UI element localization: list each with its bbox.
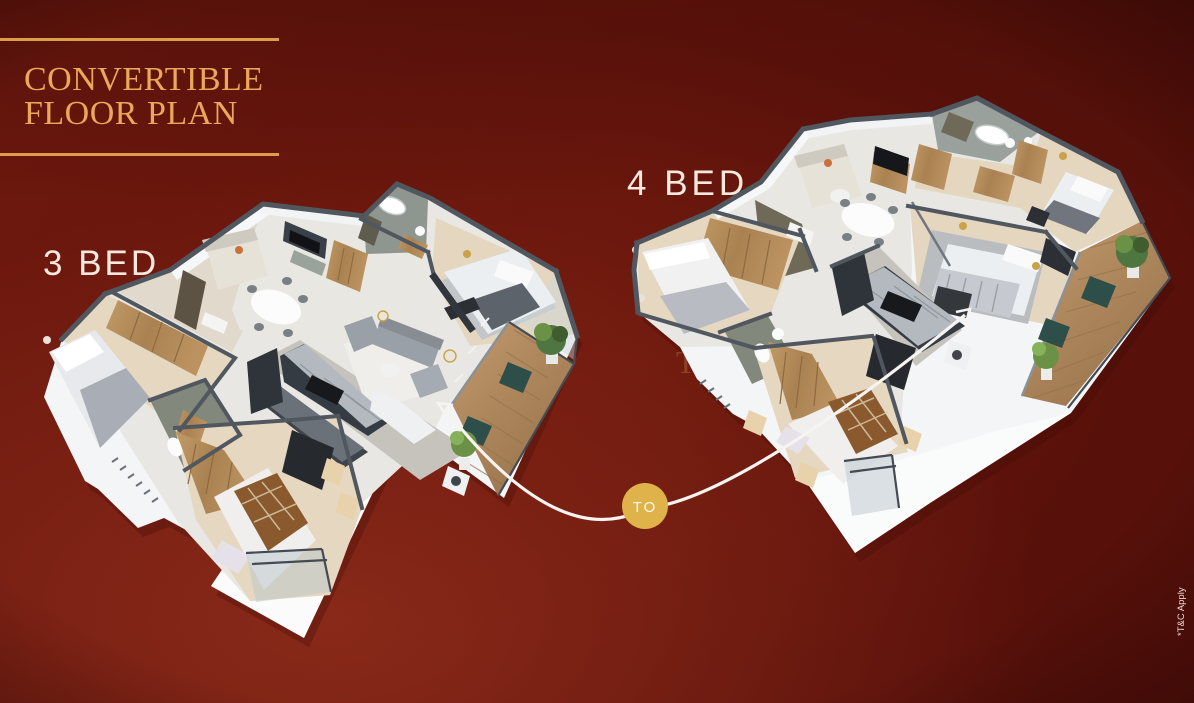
svg-text:CONVERTIBLE: CONVERTIBLE [24, 61, 264, 98]
svg-text:4 BED: 4 BED [627, 164, 748, 203]
svg-text:3 BED: 3 BED [43, 244, 159, 283]
svg-text:*T&C Apply: *T&C Apply [1176, 587, 1187, 636]
svg-text:TO: TO [633, 499, 658, 516]
svg-text:FLOOR PLAN: FLOOR PLAN [24, 95, 238, 132]
